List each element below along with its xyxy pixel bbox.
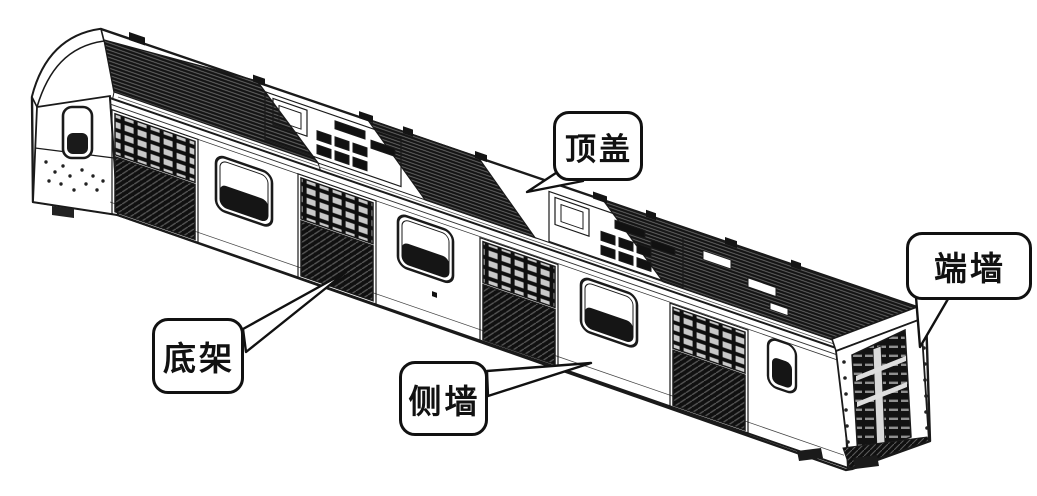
side-wall-callout-label: 侧墙 bbox=[409, 375, 481, 423]
underframe-callout: 底架 bbox=[152, 318, 244, 394]
figure-canvas: 顶盖 端墙 底架 侧墙 bbox=[0, 0, 1037, 496]
side-wall-callout: 侧墙 bbox=[399, 361, 488, 436]
end-wall-callout: 端墙 bbox=[906, 232, 1032, 300]
underframe-callout-label: 底架 bbox=[163, 332, 235, 380]
roof-callout: 顶盖 bbox=[553, 111, 643, 181]
sidewall-callout-tail bbox=[487, 363, 591, 396]
roof-callout-label: 顶盖 bbox=[565, 124, 633, 169]
end-wall-callout-label: 端墙 bbox=[934, 242, 1006, 290]
end-door-window bbox=[768, 337, 796, 395]
endwall-callout-tail bbox=[916, 297, 948, 347]
underframe-callout-tail bbox=[243, 272, 346, 352]
front-end-wall bbox=[33, 96, 118, 218]
car-body-illustration bbox=[0, 0, 1037, 496]
